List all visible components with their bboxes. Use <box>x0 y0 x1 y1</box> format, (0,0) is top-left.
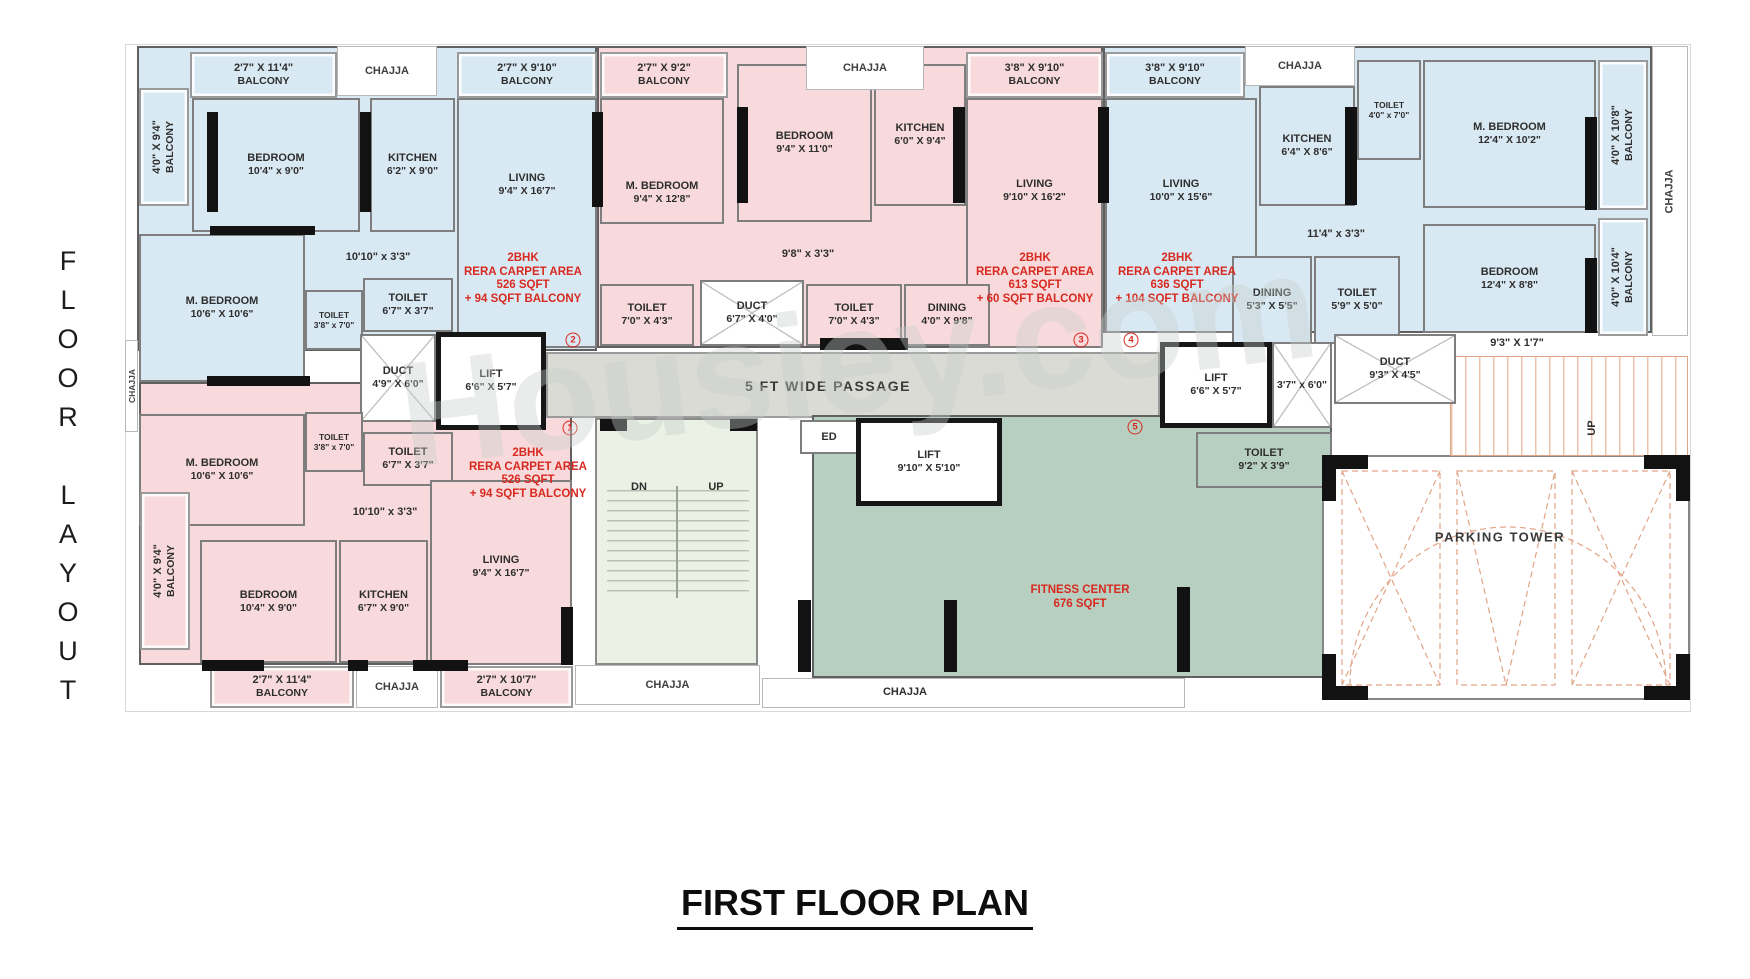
toilet-a-2-text: TOILET <box>389 292 428 305</box>
balcony-1-bottom-1: 2'7" X 11'4"BALCONY <box>210 666 354 708</box>
toilet-b-1-label: TOILET7'0" X 4'3" <box>621 302 672 328</box>
toilet-c-2-label: TOILET5'9" X 5'0" <box>1331 287 1382 313</box>
mbedroom-c-dims: 12'4" X 10'2" <box>1478 134 1541 147</box>
ed-lobby: ED <box>800 420 858 454</box>
wall-bar-5 <box>1098 107 1109 203</box>
annotation-line: 636 SQFT <box>1115 279 1238 293</box>
bedroom-b-dims: 9'4" X 11'0" <box>776 143 832 156</box>
annotation-line: 676 SQFT <box>1030 598 1129 612</box>
chajja-bottom-1: CHAJJA <box>356 666 438 708</box>
living-a-dims: 9'4" X 16'7" <box>499 185 556 198</box>
duct-right: DUCT9'3" X 4'5" <box>1334 334 1456 404</box>
wall-bar-11 <box>730 419 757 431</box>
wall-bar-8 <box>1585 258 1597 333</box>
chajja-top-3-label: CHAJJA <box>1278 60 1322 73</box>
chajja-top-3: CHAJJA <box>1245 46 1355 86</box>
bedroom-c: BEDROOM12'4" X 8'8" <box>1423 224 1596 333</box>
bedroom-1-label: BEDROOM10'4" X 9'0" <box>240 589 297 615</box>
balcony-1-bottom-1-text: 2'7" X 11'4" <box>252 674 311 687</box>
label-up: UP <box>708 481 723 493</box>
toilet-c-1-text: TOILET <box>1374 100 1404 110</box>
chajja-top-1: CHAJJA <box>337 46 437 96</box>
duct-a-text: DUCT <box>383 365 414 378</box>
lift-center: LIFT9'10" X 5'10" <box>856 418 1002 506</box>
mbedroom-b-text: M. BEDROOM <box>626 180 699 193</box>
balcony-a-top-right: 2'7" X 9'10"BALCONY <box>457 52 597 98</box>
duct-a: DUCT4'9" X 6'0" <box>360 334 436 422</box>
chajja-bottom-1-text: CHAJJA <box>375 681 419 694</box>
balcony-c-top: 3'8" X 9'10"BALCONY <box>1105 52 1245 98</box>
toilet-b-2-dims: 7'0" X 4'3" <box>828 315 879 328</box>
label-10-10-x-3-3-: 10'10" x 3'3" <box>346 251 411 263</box>
bedroom-1: BEDROOM10'4" X 9'0" <box>200 540 337 663</box>
kitchen-c-label: KITCHEN6'4" X 8'6" <box>1281 133 1332 159</box>
duct-b-text: DUCT <box>737 300 768 313</box>
shaft-right: 3'7" x 6'0" <box>1272 342 1332 428</box>
wall-bar-26 <box>1322 686 1368 700</box>
kitchen-a-text: KITCHEN <box>388 152 437 165</box>
annotation-line: FITNESS CENTER <box>1030 584 1129 598</box>
kitchen-c-text: KITCHEN <box>1283 133 1332 146</box>
toilet-1-2-text: TOILET <box>389 446 428 459</box>
wall-bar-28 <box>1644 686 1690 700</box>
ed-lobby-text: ED <box>821 431 836 444</box>
balcony-1-left-text: 4'0" X 9'4" <box>152 544 165 598</box>
unit-area-annotation-4: FITNESS CENTER676 SQFT <box>1030 584 1129 611</box>
plan-title: FIRST FLOOR PLAN <box>677 882 1033 930</box>
balcony-1-left: 4'0" X 9'4"BALCONY <box>140 492 190 650</box>
toilet-b-1: TOILET7'0" X 4'3" <box>600 284 694 346</box>
dining-b-dims: 4'0" X 9'8" <box>921 315 972 328</box>
dining-c-dims: 5'3" X 5'5" <box>1246 300 1297 313</box>
living-b-dims: 9'10" X 16'2" <box>1003 191 1066 204</box>
balcony-1-left-label: 4'0" X 9'4"BALCONY <box>152 544 178 598</box>
wall-bar-9 <box>820 338 908 350</box>
stair-treads <box>607 490 749 592</box>
annotation-line: RERA CARPET AREA <box>1115 266 1238 280</box>
balcony-c-top-text: 3'8" X 9'10" <box>1145 62 1205 75</box>
mbedroom-a-dims: 10'6" X 10'6" <box>191 308 254 321</box>
living-c-dims: 10'0" X 15'6" <box>1150 191 1213 204</box>
annotation-line: RERA CARPET AREA <box>976 266 1094 280</box>
balcony-c-top-dims: BALCONY <box>1149 75 1201 88</box>
balcony-a-left: 4'0" X 9'4"BALCONY <box>139 88 189 206</box>
bedroom-c-text: BEDROOM <box>1481 266 1538 279</box>
annotation-line: 613 SQFT <box>976 279 1094 293</box>
wall-bar-6 <box>1345 107 1357 205</box>
mbedroom-1-text: M. BEDROOM <box>186 457 259 470</box>
wall-bar-12 <box>798 600 811 672</box>
toilet-a-2-dims: 6'7" X 3'7" <box>382 305 433 318</box>
stair-rail <box>676 486 678 598</box>
label-11-4-x-3-3-: 11'4" x 3'3" <box>1307 228 1365 240</box>
wall-bar-24 <box>1676 455 1690 501</box>
unit-marker-3: 3 <box>1074 333 1089 348</box>
balcony-1-bottom-2: 2'7" X 10'7"BALCONY <box>440 666 573 708</box>
balcony-1-bottom-2-label: 2'7" X 10'7"BALCONY <box>477 674 537 700</box>
kitchen-b-label: KITCHEN6'0" X 9'4" <box>894 122 945 148</box>
wall-bar-16 <box>202 660 264 671</box>
balcony-a-top-left-label: 2'7" X 11'4"BALCONY <box>234 62 293 88</box>
chajja-top-2: CHAJJA <box>806 46 924 90</box>
shaft-right-dims: 3'7" x 6'0" <box>1277 379 1327 392</box>
lift-center-label: LIFT9'10" X 5'10" <box>898 449 961 475</box>
balcony-a-top-left: 2'7" X 11'4"BALCONY <box>190 52 337 98</box>
label-parking-tower: PARKING TOWER <box>1435 530 1565 545</box>
kitchen-a: KITCHEN6'2" X 9'0" <box>370 98 455 232</box>
living-1-dims: 9'4" X 16'7" <box>473 567 530 580</box>
balcony-c-right-1-label: 4'0" X 10'8"BALCONY <box>1610 105 1636 165</box>
chajja-right: CHAJJA <box>1652 46 1688 336</box>
lift-center-dims: 9'10" X 5'10" <box>898 462 961 475</box>
chajja-left: CHAJJA <box>125 340 138 432</box>
bedroom-a-dims: 10'4" x 9'0" <box>248 165 304 178</box>
bedroom-a-text: BEDROOM <box>247 152 304 165</box>
balcony-b-top-right-dims: BALCONY <box>1009 75 1061 88</box>
balcony-a-top-right-label: 2'7" X 9'10"BALCONY <box>497 62 557 88</box>
wall-bar-15 <box>561 607 573 665</box>
chajja-top-1-label: CHAJJA <box>365 65 409 78</box>
kitchen-b-text: KITCHEN <box>896 122 945 135</box>
dining-c-label: DINING5'3" X 5'5" <box>1246 287 1297 313</box>
duct-a-label: DUCT4'9" X 6'0" <box>372 365 423 391</box>
lift-right-text: LIFT <box>1204 372 1227 385</box>
dining-c: DINING5'3" X 5'5" <box>1232 256 1312 344</box>
duct-a-dims: 4'9" X 6'0" <box>372 378 423 391</box>
annotation-line: 2BHK <box>1115 252 1238 266</box>
bedroom-a-label: BEDROOM10'4" x 9'0" <box>247 152 304 178</box>
annotation-line: 2BHK <box>464 252 582 266</box>
toilet-1-1: TOILET3'8" x 7'0" <box>305 412 363 472</box>
chajja-top-2-text: CHAJJA <box>843 62 887 75</box>
kitchen-1-text: KITCHEN <box>359 589 408 602</box>
chajja-right-label: CHAJJA <box>1664 169 1677 213</box>
wall-bar-10 <box>600 419 627 431</box>
living-b-text: LIVING <box>1016 178 1053 191</box>
unit-marker-4: 4 <box>1124 333 1139 348</box>
unit-area-annotation-0: 2BHKRERA CARPET AREA526 SQFT+ 94 SQFT BA… <box>464 252 582 306</box>
chajja-bottom-3 <box>762 678 1185 708</box>
balcony-c-right-2-text: 4'0" X 10'4" <box>1610 247 1623 307</box>
wall-bar-7 <box>1585 117 1597 210</box>
label-10-10-x-3-3-: 10'10" x 3'3" <box>353 506 418 518</box>
living-c-label: LIVING10'0" X 15'6" <box>1150 178 1213 204</box>
balcony-1-bottom-1-label: 2'7" X 11'4"BALCONY <box>252 674 311 700</box>
balcony-a-top-right-text: 2'7" X 9'10" <box>497 62 557 75</box>
dining-c-text: DINING <box>1253 287 1292 300</box>
lift-a-text: LIFT <box>479 368 502 381</box>
label-up: UP <box>1586 420 1598 435</box>
kitchen-1-dims: 6'7" X 9'0" <box>358 602 409 615</box>
label-dn: DN <box>631 481 647 493</box>
balcony-c-right-2-dims: BALCONY <box>1623 251 1636 303</box>
toilet-fitness: TOILET9'2" X 3'9" <box>1196 432 1332 488</box>
unit-marker-5: 5 <box>1128 420 1143 435</box>
toilet-b-1-text: TOILET <box>628 302 667 315</box>
balcony-c-top-label: 3'8" X 9'10"BALCONY <box>1145 62 1205 88</box>
balcony-c-right-2-label: 4'0" X 10'4"BALCONY <box>1610 247 1636 307</box>
lift-a-dims: 6'6" X 5'7" <box>465 381 516 394</box>
toilet-c-2-dims: 5'9" X 5'0" <box>1331 300 1382 313</box>
living-b-label: LIVING9'10" X 16'2" <box>1003 178 1066 204</box>
toilet-1-2-dims: 6'7" X 3'7" <box>382 459 433 472</box>
dining-b-text: DINING <box>928 302 967 315</box>
chajja-top-3-text: CHAJJA <box>1278 60 1322 73</box>
mbedroom-a: M. BEDROOM10'6" X 10'6" <box>139 234 305 382</box>
duct-right-text: DUCT <box>1380 356 1411 369</box>
duct-b-label: DUCT6'7" X 4'0" <box>726 300 777 326</box>
living-1-text: LIVING <box>483 554 520 567</box>
mbedroom-a-text: M. BEDROOM <box>186 295 259 308</box>
bedroom-1-dims: 10'4" X 9'0" <box>240 602 297 615</box>
balcony-1-bottom-2-dims: BALCONY <box>481 687 533 700</box>
duct-right-label: DUCT9'3" X 4'5" <box>1369 356 1420 382</box>
shaft-right-label: 3'7" x 6'0" <box>1277 379 1327 392</box>
bedroom-c-label: BEDROOM12'4" X 8'8" <box>1481 266 1538 292</box>
balcony-c-right-1-dims: BALCONY <box>1623 109 1636 161</box>
balcony-1-bottom-2-text: 2'7" X 10'7" <box>477 674 537 687</box>
balcony-1-bottom-1-dims: BALCONY <box>256 687 308 700</box>
ed-lobby-label: ED <box>821 431 836 444</box>
wall-bar-14 <box>1177 587 1190 672</box>
wall-bar-13 <box>944 600 957 672</box>
duct-b-dims: 6'7" X 4'0" <box>726 313 777 326</box>
toilet-b-1-dims: 7'0" X 4'3" <box>621 315 672 328</box>
mbedroom-c-label: M. BEDROOM12'4" X 10'2" <box>1473 121 1546 147</box>
balcony-b-top-right: 3'8" X 9'10"BALCONY <box>966 52 1103 98</box>
balcony-b-top-right-text: 3'8" X 9'10" <box>1005 62 1065 75</box>
toilet-1-2-label: TOILET6'7" X 3'7" <box>382 446 433 472</box>
balcony-b-top-dims: BALCONY <box>638 75 690 88</box>
floor-plan: FLOOR LAYOUT FIRST FLOOR PLAN 2'7" X 11'… <box>0 0 1750 979</box>
balcony-c-right-1: 4'0" X 10'8"BALCONY <box>1598 60 1648 210</box>
balcony-c-right-2: 4'0" X 10'4"BALCONY <box>1598 218 1648 336</box>
duct-b: DUCT6'7" X 4'0" <box>700 280 804 346</box>
living-a-text: LIVING <box>509 172 546 185</box>
toilet-b-2-label: TOILET7'0" X 4'3" <box>828 302 879 328</box>
annotation-line: + 94 SQFT BALCONY <box>469 488 587 502</box>
chajja-left-text: CHAJJA <box>127 369 137 403</box>
toilet-1-1-text: TOILET <box>319 432 349 442</box>
wall-bar-19 <box>210 226 315 235</box>
wall-bar-0 <box>207 112 218 212</box>
mbedroom-a-label: M. BEDROOM10'6" X 10'6" <box>186 295 259 321</box>
unit-area-annotation-3: 2BHKRERA CARPET AREA526 SQFT+ 94 SQFT BA… <box>469 447 587 501</box>
parking-tower-linework <box>1322 455 1690 700</box>
balcony-1-left-dims: BALCONY <box>165 545 178 597</box>
balcony-b-top-text: 2'7" X 9'2" <box>637 62 691 75</box>
mbedroom-c: M. BEDROOM12'4" X 10'2" <box>1423 60 1596 208</box>
kitchen-b-dims: 6'0" X 9'4" <box>894 135 945 148</box>
label-9-3-x-1-7-: 9'3" X 1'7" <box>1490 337 1544 349</box>
unit-area-annotation-2: 2BHKRERA CARPET AREA636 SQFT+ 104 SQFT B… <box>1115 252 1238 306</box>
unit-area-annotation-1: 2BHKRERA CARPET AREA613 SQFT+ 60 SQFT BA… <box>976 252 1094 306</box>
balcony-a-top-left-dims: BALCONY <box>238 75 290 88</box>
toilet-b-2-text: TOILET <box>835 302 874 315</box>
toilet-b-2: TOILET7'0" X 4'3" <box>806 284 902 346</box>
lift-right-label: LIFT6'6" X 5'7" <box>1190 372 1241 398</box>
side-title: FLOOR LAYOUT <box>52 246 83 714</box>
toilet-1-1-label: TOILET3'8" x 7'0" <box>314 432 354 452</box>
balcony-a-left-label: 4'0" X 9'4"BALCONY <box>151 120 177 174</box>
toilet-a-1-text: TOILET <box>319 310 349 320</box>
living-a-label: LIVING9'4" X 16'7" <box>499 172 556 198</box>
kitchen-1-label: KITCHEN6'7" X 9'0" <box>358 589 409 615</box>
balcony-a-top-left-text: 2'7" X 11'4" <box>234 62 293 75</box>
annotation-line: + 104 SQFT BALCONY <box>1115 293 1238 307</box>
toilet-1-2: TOILET6'7" X 3'7" <box>363 432 453 486</box>
toilet-c-1-dims: 4'0" x 7'0" <box>1369 110 1409 120</box>
toilet-a-2: TOILET6'7" X 3'7" <box>363 278 453 332</box>
bedroom-1-text: BEDROOM <box>240 589 297 602</box>
chajja-top-1-text: CHAJJA <box>365 65 409 78</box>
toilet-c-1: TOILET4'0" x 7'0" <box>1357 60 1421 160</box>
annotation-line: + 94 SQFT BALCONY <box>464 293 582 307</box>
living-c-text: LIVING <box>1163 178 1200 191</box>
wall-bar-18 <box>413 660 468 671</box>
label-chajja: CHAJJA <box>883 686 927 698</box>
wall-bar-17 <box>348 660 368 671</box>
chajja-left-label: CHAJJA <box>127 369 137 403</box>
balcony-b-top-right-label: 3'8" X 9'10"BALCONY <box>1005 62 1065 88</box>
balcony-b-top-label: 2'7" X 9'2"BALCONY <box>637 62 691 88</box>
wall-bar-20 <box>207 376 310 386</box>
bedroom-b-label: BEDROOM9'4" X 11'0" <box>776 130 833 156</box>
wall-bar-4 <box>953 107 965 203</box>
chajja-bottom-2-label: CHAJJA <box>645 679 689 692</box>
mbedroom-b-label: M. BEDROOM9'4" X 12'8" <box>626 180 699 206</box>
lift-a: LIFT6'6" X 5'7" <box>436 332 546 430</box>
annotation-line: RERA CARPET AREA <box>464 266 582 280</box>
toilet-fitness-dims: 9'2" X 3'9" <box>1238 460 1289 473</box>
unit-marker-2: 2 <box>566 333 581 348</box>
dining-b-label: DINING4'0" X 9'8" <box>921 302 972 328</box>
annotation-line: 2BHK <box>469 447 587 461</box>
kitchen-a-label: KITCHEN6'2" X 9'0" <box>387 152 438 178</box>
chajja-bottom-2: CHAJJA <box>575 665 760 705</box>
toilet-fitness-text: TOILET <box>1245 447 1284 460</box>
zone-parking-stair <box>1450 356 1688 456</box>
living-1-label: LIVING9'4" X 16'7" <box>473 554 530 580</box>
bedroom-c-dims: 12'4" X 8'8" <box>1481 279 1538 292</box>
toilet-1-1-dims: 3'8" x 7'0" <box>314 442 354 452</box>
balcony-a-left-text: 4'0" X 9'4" <box>151 120 164 174</box>
wall-bar-22 <box>1322 455 1336 501</box>
living-1: LIVING9'4" X 16'7" <box>430 480 572 665</box>
toilet-a-1: TOILET3'8" x 7'0" <box>305 290 363 350</box>
wall-bar-1 <box>360 112 371 212</box>
annotation-line: RERA CARPET AREA <box>469 461 587 475</box>
chajja-bottom-2-text: CHAJJA <box>645 679 689 692</box>
toilet-a-1-label: TOILET3'8" x 7'0" <box>314 310 354 330</box>
label-9-8-x-3-3-: 9'8" x 3'3" <box>782 248 834 260</box>
toilet-c-2-text: TOILET <box>1338 287 1377 300</box>
toilet-c-1-label: TOILET4'0" x 7'0" <box>1369 100 1409 120</box>
mbedroom-b: M. BEDROOM9'4" X 12'8" <box>600 98 724 224</box>
bedroom-b-text: BEDROOM <box>776 130 833 143</box>
wall-bar-2 <box>592 112 603 207</box>
mbedroom-b-dims: 9'4" X 12'8" <box>633 193 690 206</box>
balcony-a-top-right-dims: BALCONY <box>501 75 553 88</box>
kitchen-c: KITCHEN6'4" X 8'6" <box>1259 86 1355 206</box>
mbedroom-c-text: M. BEDROOM <box>1473 121 1546 134</box>
annotation-line: 2BHK <box>976 252 1094 266</box>
annotation-line: + 60 SQFT BALCONY <box>976 293 1094 307</box>
toilet-a-1-dims: 3'8" x 7'0" <box>314 320 354 330</box>
kitchen-c-dims: 6'4" X 8'6" <box>1281 146 1332 159</box>
lift-a-label: LIFT6'6" X 5'7" <box>465 368 516 394</box>
mbedroom-1-label: M. BEDROOM10'6" X 10'6" <box>186 457 259 483</box>
label-5-ft-wide-passage: 5 FT WIDE PASSAGE <box>745 378 911 394</box>
annotation-line: 526 SQFT <box>469 474 587 488</box>
lift-right: LIFT6'6" X 5'7" <box>1160 342 1272 428</box>
mbedroom-1-dims: 10'6" X 10'6" <box>191 470 254 483</box>
chajja-top-2-label: CHAJJA <box>843 62 887 75</box>
toilet-fitness-label: TOILET9'2" X 3'9" <box>1238 447 1289 473</box>
annotation-line: 526 SQFT <box>464 279 582 293</box>
lift-right-dims: 6'6" X 5'7" <box>1190 385 1241 398</box>
wall-bar-3 <box>737 107 748 203</box>
toilet-a-2-label: TOILET6'7" X 3'7" <box>382 292 433 318</box>
toilet-c-2: TOILET5'9" X 5'0" <box>1314 256 1400 344</box>
duct-right-dims: 9'3" X 4'5" <box>1369 369 1420 382</box>
balcony-c-right-1-text: 4'0" X 10'8" <box>1610 105 1623 165</box>
unit-marker-1: 1 <box>563 421 578 436</box>
lift-center-text: LIFT <box>917 449 940 462</box>
kitchen-a-dims: 6'2" X 9'0" <box>387 165 438 178</box>
balcony-b-top: 2'7" X 9'2"BALCONY <box>600 52 728 98</box>
balcony-a-left-dims: BALCONY <box>164 121 177 173</box>
kitchen-1: KITCHEN6'7" X 9'0" <box>339 540 428 663</box>
living-a: LIVING9'4" X 16'7" <box>457 98 597 348</box>
chajja-bottom-1-label: CHAJJA <box>375 681 419 694</box>
chajja-right-text: CHAJJA <box>1664 169 1677 213</box>
